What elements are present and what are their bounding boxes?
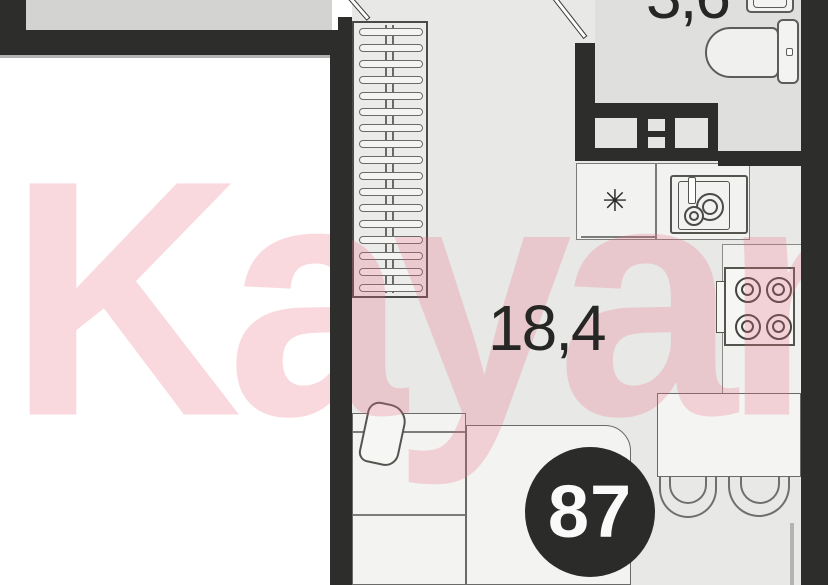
bed-blanket-line [353, 514, 465, 516]
wardrobe-hanger-bar [359, 60, 423, 68]
wardrobe-hanger-bar [359, 28, 423, 36]
wardrobe-hanger-bar [359, 76, 423, 84]
wall-left-top [338, 17, 352, 32]
bathroom-area-label: 3,6 [646, 0, 786, 28]
unit-number: 87 [525, 447, 655, 577]
toilet-bowl [705, 27, 779, 78]
wall-shadow-line [0, 55, 330, 58]
wardrobe-hanger-bar [359, 44, 423, 52]
vent-shaft-cell [595, 118, 637, 148]
unit-number-badge: 87 [525, 447, 655, 577]
radiator-strip [790, 523, 794, 585]
wall-left [330, 30, 352, 585]
vent-shaft-cell [648, 119, 665, 131]
living-room-area-label: 18,4 [488, 296, 628, 360]
wall-right [801, 0, 828, 585]
wall-neighbor-bottom [0, 30, 352, 55]
toilet-flush-button [786, 48, 793, 56]
vent-shaft-cell [675, 118, 708, 148]
agency-watermark: Kayan [8, 130, 828, 466]
wall-bathroom-bottom [718, 151, 801, 166]
neighbor-room-floor [25, 0, 332, 31]
wardrobe-hanger-bar [359, 92, 423, 100]
floorplan: ✳ Kayan 18,4 3,6 87 [0, 0, 828, 585]
vent-shaft-cell [648, 137, 665, 148]
